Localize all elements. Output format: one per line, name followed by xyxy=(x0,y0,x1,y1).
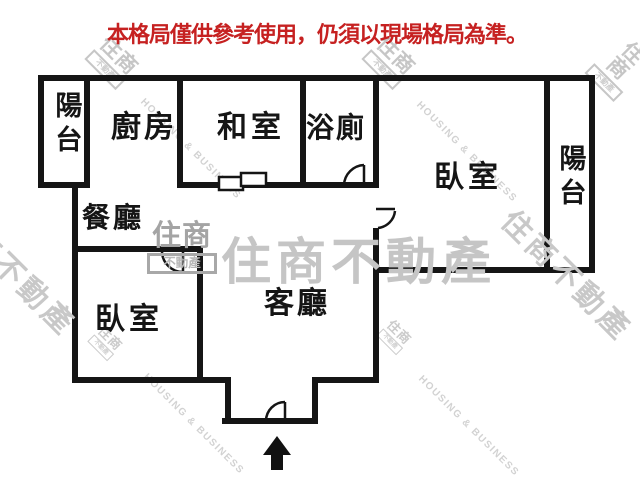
room-label-bedroom-right: 臥室 xyxy=(434,162,502,194)
room-label-dining-room: 餐廳 xyxy=(82,203,144,232)
room-label-balcony-right: 陽台 xyxy=(556,144,584,212)
room-label-bedroom-left: 臥室 xyxy=(95,304,163,336)
wall-segment xyxy=(72,377,231,383)
wall-segment xyxy=(373,228,379,383)
floor-plan-page: HOUSING & BUSINESS HOUSING & BUSINESS HO… xyxy=(0,0,640,480)
floor-plan-drawing xyxy=(0,0,640,480)
wall-segment xyxy=(84,75,90,188)
wall-segment xyxy=(38,75,44,188)
wall-segment xyxy=(177,75,183,188)
room-label-balcony-left: 陽台 xyxy=(52,91,80,159)
wall-segment xyxy=(178,182,379,188)
room-label-kitchen: 廚房 xyxy=(111,112,177,144)
room-label-tatami-room: 和室 xyxy=(217,112,285,144)
wall-segment xyxy=(38,182,90,188)
door-arc xyxy=(162,251,183,272)
room-label-living-room: 客廳 xyxy=(264,288,330,320)
door-arc xyxy=(378,211,395,228)
wall-segment xyxy=(373,75,379,188)
entrance-arrow xyxy=(263,436,291,470)
wall-segment xyxy=(312,377,318,424)
wall-segment xyxy=(38,75,595,81)
wall-segment xyxy=(222,418,318,424)
wall-segment xyxy=(373,267,595,273)
sliding-door-panel xyxy=(241,173,266,186)
wall-segment xyxy=(72,182,78,383)
wall-segment xyxy=(544,75,550,273)
room-label-bathroom: 浴廁 xyxy=(306,113,366,142)
wall-segment xyxy=(225,377,231,424)
wall-segment xyxy=(197,246,203,383)
disclaimer-text: 本格局僅供參考使用，仍須以現場格局為準。 xyxy=(107,17,527,49)
sliding-door-panel xyxy=(219,177,243,190)
wall-segment xyxy=(312,377,379,383)
wall-segment xyxy=(589,75,595,273)
